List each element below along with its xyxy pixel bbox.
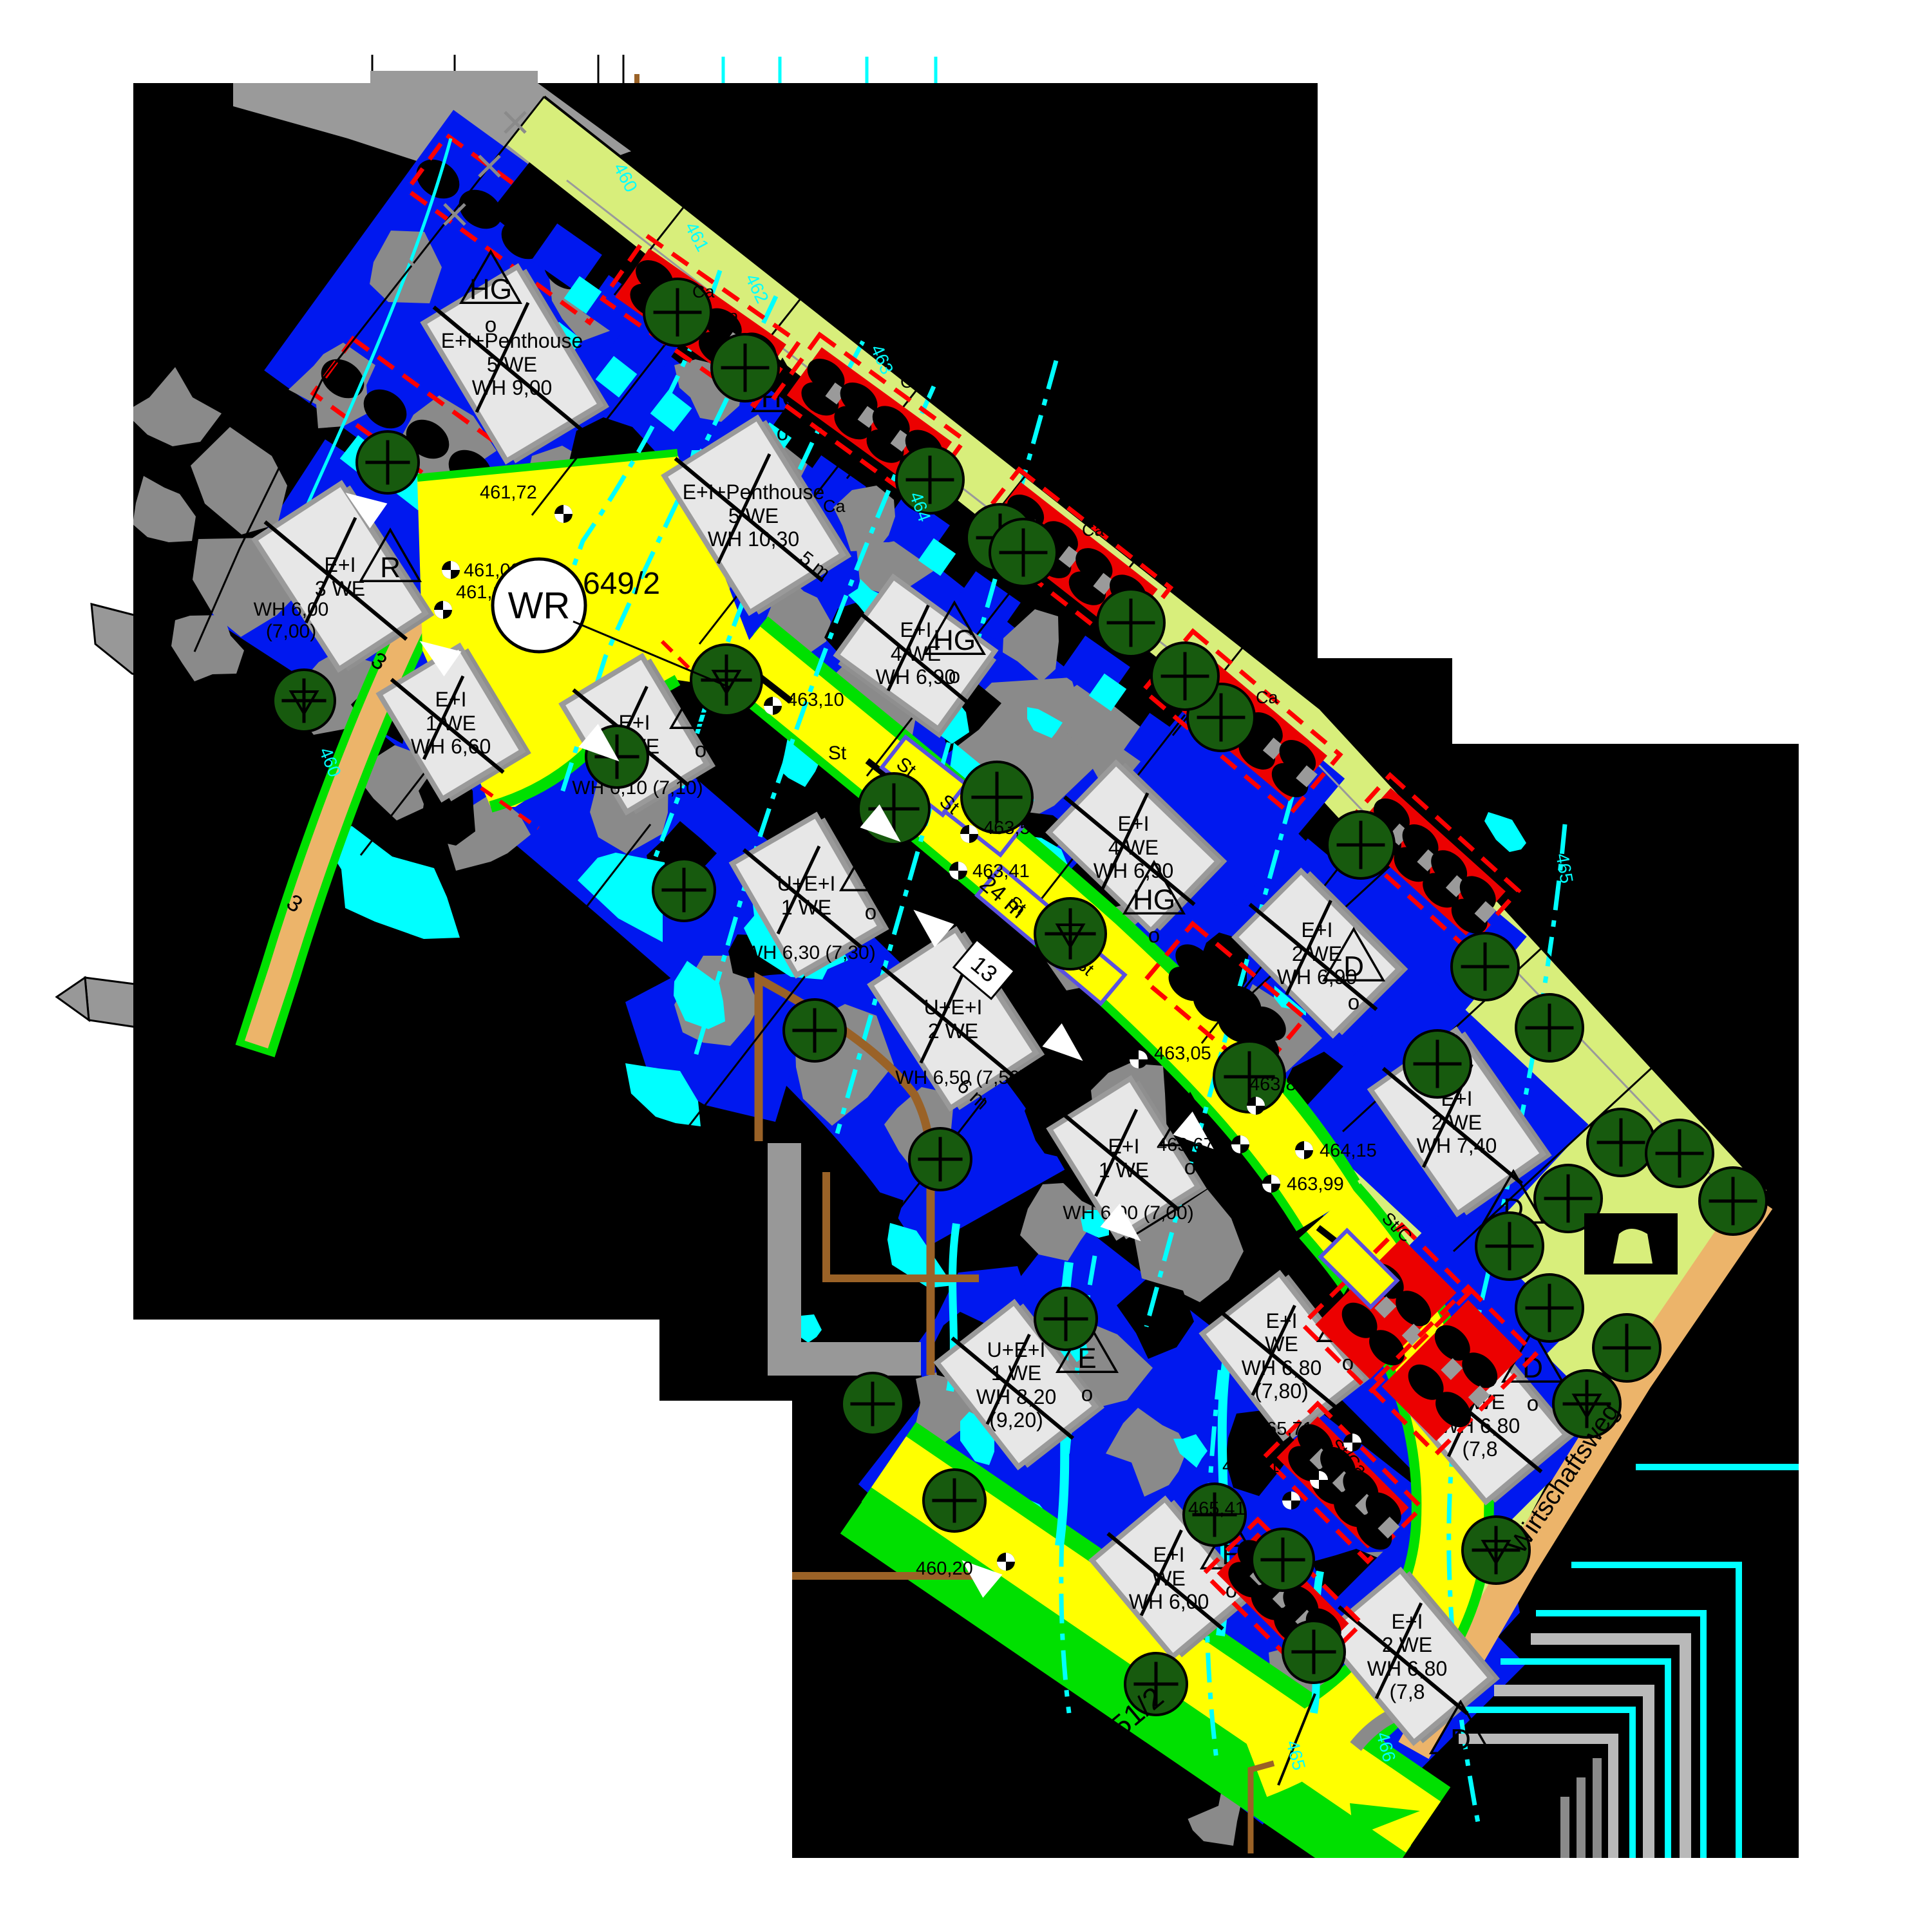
svg-text:463,67: 463,67 bbox=[1157, 1135, 1214, 1155]
svg-text:D: D bbox=[1450, 1724, 1471, 1756]
svg-text:WH 10,30: WH 10,30 bbox=[708, 527, 799, 551]
svg-text:649/2: 649/2 bbox=[583, 567, 660, 601]
svg-text:HG: HG bbox=[1133, 884, 1175, 916]
svg-text:465,41: 465,41 bbox=[1188, 1499, 1245, 1519]
svg-text:o: o bbox=[1348, 991, 1359, 1015]
svg-text:WH 6,00: WH 6,00 bbox=[254, 599, 329, 620]
svg-text:o: o bbox=[1455, 1764, 1466, 1788]
svg-text:1 WE: 1 WE bbox=[1099, 1159, 1149, 1182]
svg-text:464,15: 464,15 bbox=[1320, 1141, 1377, 1161]
svg-text:649: 649 bbox=[258, 777, 307, 810]
svg-text:460,20: 460,20 bbox=[916, 1558, 973, 1579]
svg-text:(9,20): (9,20) bbox=[989, 1408, 1043, 1432]
svg-text:WH 6,90: WH 6,90 bbox=[876, 665, 956, 688]
svg-text:465,61: 465,61 bbox=[1222, 1456, 1280, 1477]
svg-text:(7,00): (7,00) bbox=[266, 621, 316, 642]
svg-text:o: o bbox=[485, 314, 497, 337]
svg-text:Ca: Ca bbox=[692, 282, 715, 301]
svg-text:4 WE: 4 WE bbox=[1108, 836, 1159, 859]
svg-text:o: o bbox=[1081, 1383, 1093, 1406]
svg-text:E+I: E+I bbox=[1392, 1610, 1423, 1633]
svg-text:2 WE: 2 WE bbox=[928, 1019, 978, 1043]
svg-text:461,72: 461,72 bbox=[480, 482, 537, 503]
svg-text:1 WE: 1 WE bbox=[991, 1361, 1041, 1385]
svg-text:WH 6,30 (7,30): WH 6,30 (7,30) bbox=[744, 942, 875, 963]
svg-text:WH 6,00: WH 6,00 bbox=[1129, 1590, 1209, 1613]
svg-text:WR: WR bbox=[508, 585, 571, 627]
svg-text:E+I+Penthouse: E+I+Penthouse bbox=[683, 480, 825, 504]
svg-text:o: o bbox=[949, 665, 960, 688]
svg-text:WE: WE bbox=[1152, 1567, 1186, 1590]
svg-text:Ca: Ca bbox=[823, 497, 846, 516]
svg-text:463,53: 463,53 bbox=[983, 818, 1041, 838]
svg-text:E+I: E+I bbox=[1118, 812, 1150, 835]
svg-text:WH 9,00: WH 9,00 bbox=[472, 376, 552, 399]
svg-text:Ca: Ca bbox=[1256, 688, 1278, 707]
svg-text:o: o bbox=[1527, 1392, 1539, 1416]
svg-text:(7,8: (7,8 bbox=[1389, 1680, 1425, 1703]
svg-text:(7,8: (7,8 bbox=[1462, 1437, 1497, 1461]
svg-text:463,05: 463,05 bbox=[1154, 1043, 1211, 1064]
svg-text:WH 6,90: WH 6,90 bbox=[1094, 859, 1173, 882]
svg-text:Ca: Ca bbox=[716, 307, 739, 326]
svg-text:E+I: E+I bbox=[1266, 1309, 1298, 1332]
svg-text:463,99: 463,99 bbox=[1287, 1174, 1344, 1195]
svg-text:(7,80): (7,80) bbox=[1255, 1379, 1309, 1403]
svg-text:E: E bbox=[861, 861, 880, 893]
svg-text:U+E+I: U+E+I bbox=[777, 872, 836, 895]
svg-text:o: o bbox=[1148, 924, 1160, 948]
svg-text:E+I: E+I bbox=[1108, 1135, 1140, 1158]
svg-text:2 WE: 2 WE bbox=[1382, 1633, 1432, 1656]
svg-text:o: o bbox=[695, 739, 706, 762]
svg-text:WH 6,80: WH 6,80 bbox=[1242, 1356, 1321, 1379]
svg-text:WH 8,20: WH 8,20 bbox=[976, 1385, 1056, 1408]
svg-text:WH 7,40: WH 7,40 bbox=[1417, 1134, 1497, 1157]
svg-text:E+I: E+I bbox=[1153, 1543, 1185, 1566]
svg-text:E+I+Penthouse: E+I+Penthouse bbox=[441, 329, 583, 352]
svg-text:465,71: 465,71 bbox=[1256, 1419, 1313, 1439]
svg-text:E+I: E+I bbox=[435, 688, 467, 711]
svg-text:463,10: 463,10 bbox=[787, 690, 844, 710]
svg-text:o: o bbox=[865, 901, 876, 925]
svg-text:WH 6,80: WH 6,80 bbox=[1367, 1657, 1447, 1680]
svg-text:1 WE: 1 WE bbox=[781, 896, 831, 919]
svg-text:E+I: E+I bbox=[1302, 918, 1333, 942]
svg-text:5 WE: 5 WE bbox=[487, 353, 537, 376]
svg-text:R: R bbox=[380, 552, 401, 583]
svg-text:U+E+I: U+E+I bbox=[987, 1338, 1046, 1361]
svg-text:HG: HG bbox=[933, 625, 976, 656]
svg-text:E+I: E+I bbox=[900, 618, 932, 641]
svg-text:D: D bbox=[1343, 951, 1364, 983]
svg-text:Ca: Ca bbox=[1082, 520, 1104, 540]
svg-text:1 WE: 1 WE bbox=[426, 712, 476, 735]
svg-text:U+E+I: U+E+I bbox=[924, 996, 983, 1019]
svg-text:5 WE: 5 WE bbox=[728, 504, 779, 527]
svg-text:o: o bbox=[777, 422, 788, 446]
svg-text:2 WE: 2 WE bbox=[1432, 1111, 1482, 1134]
svg-text:HG: HG bbox=[469, 274, 512, 305]
svg-text:St: St bbox=[828, 743, 847, 764]
svg-text:WH 6,60: WH 6,60 bbox=[411, 735, 491, 758]
svg-text:D/E: D/E bbox=[1040, 1052, 1088, 1083]
svg-text:3 WE: 3 WE bbox=[315, 577, 365, 600]
svg-text:E+I: E+I bbox=[325, 553, 356, 576]
svg-text:WE: WE bbox=[1265, 1332, 1298, 1356]
svg-text:o: o bbox=[1184, 1156, 1196, 1180]
svg-text:Ca: Ca bbox=[900, 372, 923, 392]
svg-text:463,85: 463,85 bbox=[1249, 1074, 1307, 1095]
